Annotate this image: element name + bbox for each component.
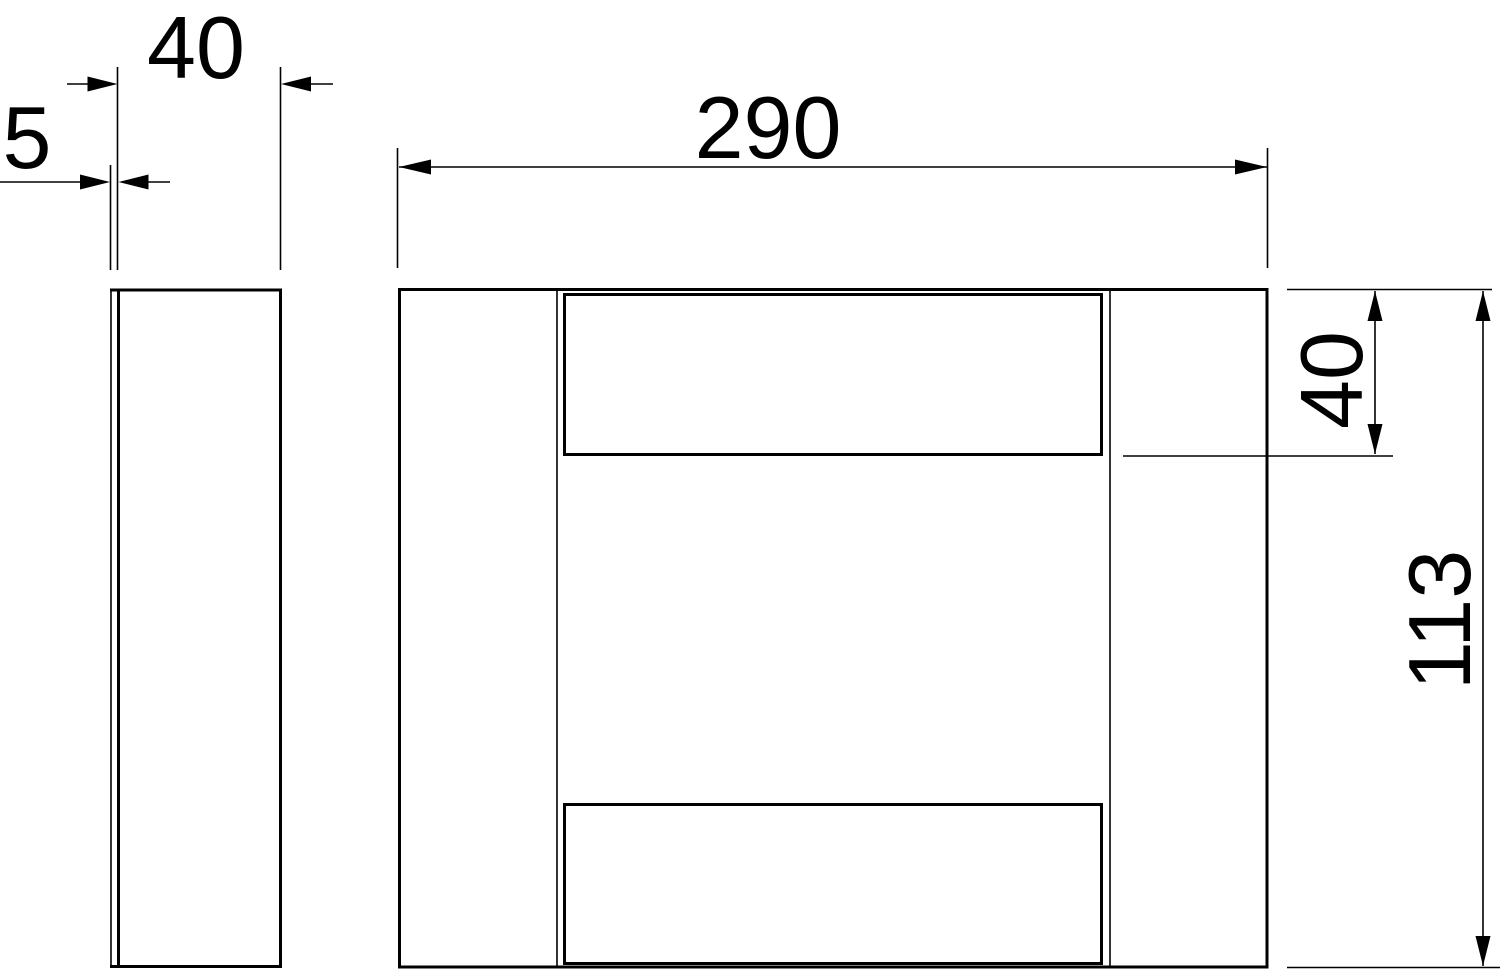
arrowhead-right-icon — [80, 175, 110, 190]
front-view-outline — [400, 290, 1268, 968]
front-view-top-panel — [565, 295, 1102, 455]
dim-side-depth-label: 40 — [147, 0, 245, 97]
dim-front-top-section-height: 40 — [1123, 290, 1492, 457]
arrowhead-right-icon — [88, 77, 118, 92]
arrowhead-up-icon — [1368, 291, 1383, 321]
side-view — [110, 289, 282, 969]
arrowhead-left-icon — [281, 77, 311, 92]
dim-front-width: 290 — [398, 78, 1268, 268]
arrowhead-down-icon — [1476, 936, 1491, 966]
dim-front-width-label: 290 — [695, 78, 842, 177]
arrowhead-right-icon — [1235, 160, 1267, 175]
arrowhead-left-icon — [119, 175, 149, 190]
dim-side-panel-thickness: 5 — [0, 88, 170, 270]
arrowhead-up-icon — [1476, 291, 1491, 321]
dim-front-total-height-label: 113 — [1390, 550, 1489, 690]
technical-drawing: 40 5 290 40 — [0, 0, 1500, 972]
front-view-bottom-panel — [565, 805, 1102, 964]
arrowhead-left-icon — [399, 160, 431, 175]
front-view — [400, 290, 1268, 968]
dim-side-panel-thickness-label: 5 — [3, 88, 52, 187]
dim-front-top-section-height-label: 40 — [1282, 331, 1381, 429]
dim-side-depth: 40 — [67, 0, 333, 270]
